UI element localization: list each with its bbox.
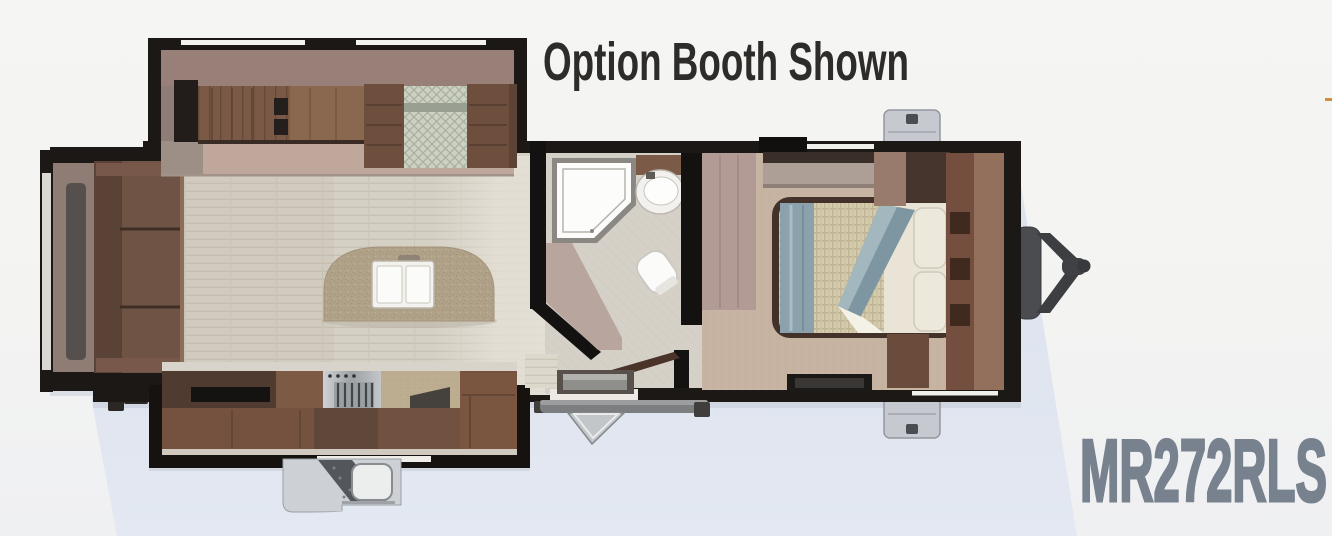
svg-text:Option Booth Shown: Option Booth Shown	[543, 32, 909, 92]
svg-text:MR272RLS: MR272RLS	[1080, 421, 1327, 520]
